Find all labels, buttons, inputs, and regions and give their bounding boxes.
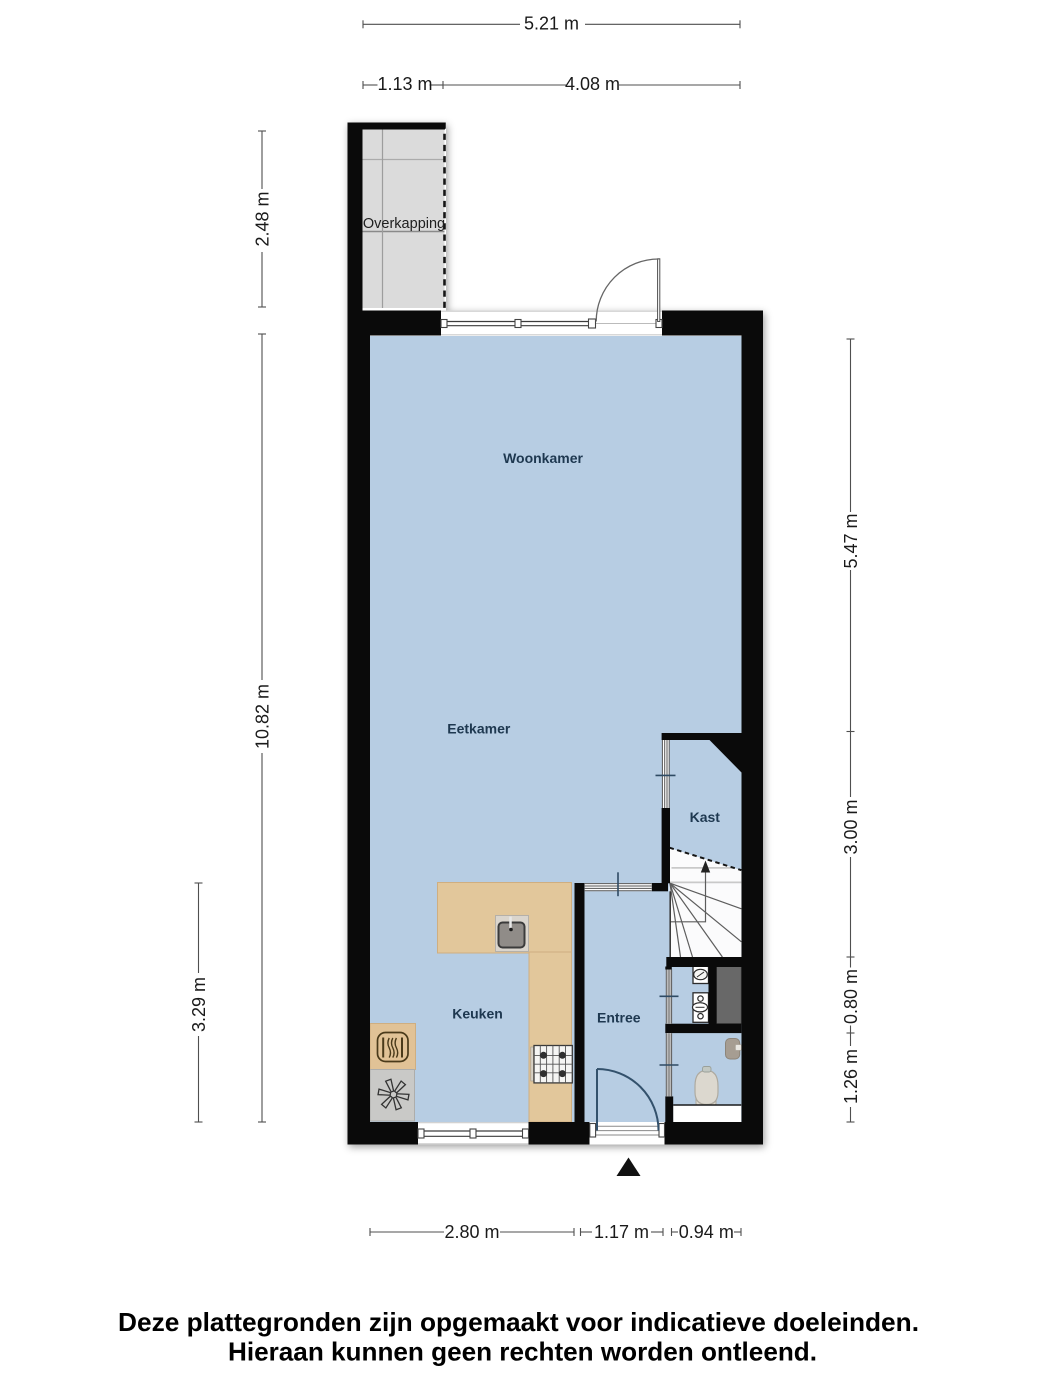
svg-text:2.48 m: 2.48 m <box>253 191 273 246</box>
svg-text:Kast: Kast <box>690 809 721 825</box>
svg-text:1.13 m: 1.13 m <box>377 74 432 94</box>
svg-text:Keuken: Keuken <box>452 1005 503 1021</box>
svg-text:5.47 m: 5.47 m <box>841 513 861 568</box>
svg-text:3.00 m: 3.00 m <box>841 799 861 854</box>
svg-text:Overkapping: Overkapping <box>363 216 445 232</box>
svg-text:1.26 m: 1.26 m <box>841 1049 861 1104</box>
svg-text:Woonkamer: Woonkamer <box>503 450 583 466</box>
svg-text:0.94 m: 0.94 m <box>679 1222 734 1242</box>
svg-text:Hieraan kunnen geen rechten wo: Hieraan kunnen geen rechten worden ontle… <box>228 1337 817 1367</box>
svg-text:10.82 m: 10.82 m <box>253 684 273 749</box>
svg-text:Entree: Entree <box>597 1009 641 1025</box>
svg-text:Eetkamer: Eetkamer <box>447 720 511 736</box>
svg-text:4.08 m: 4.08 m <box>565 74 620 94</box>
svg-text:1.17 m: 1.17 m <box>594 1222 649 1242</box>
svg-text:Deze plattegronden zijn opgema: Deze plattegronden zijn opgemaakt voor i… <box>118 1307 919 1337</box>
svg-text:0.80 m: 0.80 m <box>841 969 861 1024</box>
svg-text:3.29 m: 3.29 m <box>189 977 209 1032</box>
svg-text:5.21 m: 5.21 m <box>524 14 579 34</box>
svg-text:2.80 m: 2.80 m <box>444 1222 499 1242</box>
